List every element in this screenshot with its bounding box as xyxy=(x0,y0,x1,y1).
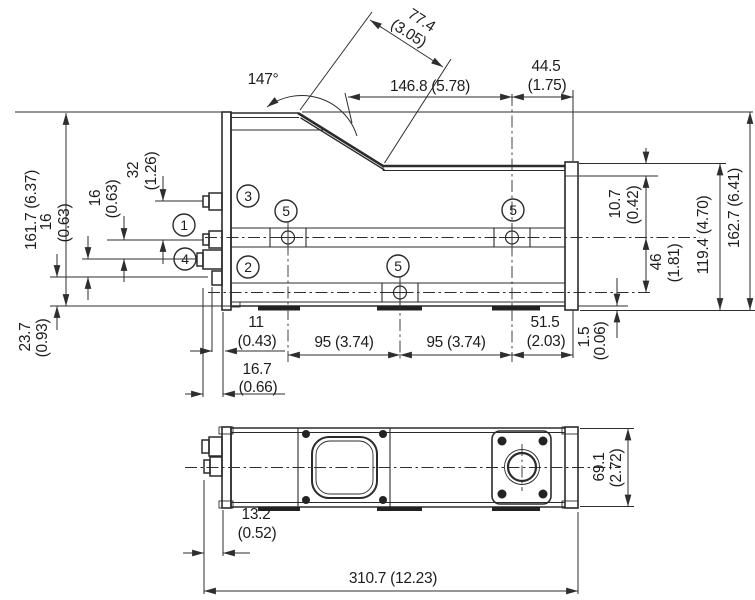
dim-label-1-5-mm: 1.5 xyxy=(576,327,593,348)
lens-plate-screw xyxy=(539,490,548,499)
callout-1: 1 xyxy=(173,214,195,236)
foot-pad xyxy=(492,507,540,511)
dim-label-10-7-inch: (0.42) xyxy=(625,186,642,225)
dim-label-310-7: 310.7 (12.23) xyxy=(349,570,437,587)
dim-label-51-5-mm: 51.5 xyxy=(531,314,560,331)
dim-label-angle: 147° xyxy=(248,71,279,88)
bottom-view xyxy=(185,427,620,511)
side-view: 3 5 1 4 2 5 5 xyxy=(173,112,578,311)
dim-label-16b-inch: (0.63) xyxy=(56,204,73,243)
callout-5-upper-right: 5 xyxy=(502,199,524,221)
callout-2-label: 2 xyxy=(244,259,252,275)
dim-label-23-7-inch: (0.93) xyxy=(34,319,51,358)
slanted-window-outer xyxy=(298,113,383,166)
callout-5-label: 5 xyxy=(509,202,517,218)
connector-m12-second xyxy=(203,231,222,248)
dim-label-162-7: 162.7 (6.41) xyxy=(726,168,743,248)
dim-label-10-7-mm: 10.7 xyxy=(607,190,624,219)
dim-label-16a-inch: (0.63) xyxy=(104,180,121,219)
dim-label-44-5-inch: (1.75) xyxy=(528,77,567,94)
lens-plate-screw xyxy=(498,437,507,446)
callout-1-label: 1 xyxy=(180,217,188,233)
connector-bottom-view-lower xyxy=(204,457,222,476)
dim-label-46-mm: 46 xyxy=(648,254,665,271)
dim-label-11-inch: (0.43) xyxy=(238,333,277,350)
front-end-cap xyxy=(565,162,578,310)
dim-label-44-5-mm: 44.5 xyxy=(532,58,561,75)
window-screw xyxy=(379,496,387,504)
dim-label-146-8: 146.8 (5.78) xyxy=(390,78,470,95)
callout-2: 2 xyxy=(237,256,259,278)
dim-label-51-5-inch: (2.03) xyxy=(527,333,566,350)
dim-label-95-a: 95 (3.74) xyxy=(314,334,373,351)
dim-label-77-4: 77.4 (3.05) xyxy=(387,1,439,51)
slanted-window-inner xyxy=(301,118,385,170)
callout-5-upper-left: 5 xyxy=(275,200,297,222)
dimensioning-side: 146.8 (5.78) 44.5 (1.75) 147° 95 (3.74) … xyxy=(15,1,755,397)
extension-line-slanted xyxy=(385,59,452,163)
window-screw xyxy=(302,496,310,504)
window-screw xyxy=(302,430,310,438)
connector-m12-top xyxy=(203,193,222,210)
dim-label-32-mm: 32 xyxy=(125,162,142,179)
dim-label-16-7-inch: (0.66) xyxy=(239,379,278,396)
dim-label-11-mm: 11 xyxy=(248,314,264,331)
foot-pad xyxy=(492,306,540,311)
dim-label-69-1-mm: 69.1 xyxy=(591,453,608,482)
dim-label-95-b: 95 (3.74) xyxy=(426,334,485,351)
callout-5-lower: 5 xyxy=(387,255,409,277)
window-screw xyxy=(379,430,387,438)
callout-5-label: 5 xyxy=(394,258,402,274)
technical-drawing-page: 3 5 1 4 2 5 5 xyxy=(0,0,755,600)
connector-bottom-view-upper xyxy=(202,437,222,456)
dim-label-32-inch: (1.26) xyxy=(143,152,160,191)
dim-label-1-5-inch: (0.06) xyxy=(592,322,609,361)
lens-plate-screw xyxy=(498,490,507,499)
dim-label-46-inch: (1.81) xyxy=(666,244,683,283)
lens-plate-screw xyxy=(539,437,548,446)
dim-label-13-2-inch: (0.52) xyxy=(238,525,277,542)
foot-pad xyxy=(377,507,422,511)
extension-line-slanted xyxy=(300,12,372,110)
dim-label-23-7-mm: 23.7 xyxy=(17,323,34,352)
dimension-drawing: 3 5 1 4 2 5 5 xyxy=(0,0,755,600)
callout-3: 3 xyxy=(237,185,259,207)
dim-label-16a-mm: 16 xyxy=(87,190,104,207)
dim-label-161-7: 161.7 (6.37) xyxy=(23,170,40,250)
connector-small xyxy=(212,271,222,285)
foot-pad xyxy=(258,306,300,311)
dim-label-119-4: 119.4 (4.70) xyxy=(695,195,712,274)
callout-3-label: 3 xyxy=(244,188,252,204)
callout-5-label: 5 xyxy=(282,203,290,219)
dim-label-69-1-inch: (2.72) xyxy=(608,449,625,488)
dim-label-16-7-mm: 16.7 xyxy=(243,361,272,378)
dimensioning-bottom: 13.2 (0.52) 310.7 (12.23) 69.1 (2.72) xyxy=(183,429,634,595)
connector-large xyxy=(197,250,222,269)
rear-mounting-plate xyxy=(222,112,231,310)
dim-label-16b-mm: 16 xyxy=(38,214,55,231)
dim-label-13-2-mm: 13.2 xyxy=(242,506,271,523)
foot-pad xyxy=(377,306,422,311)
